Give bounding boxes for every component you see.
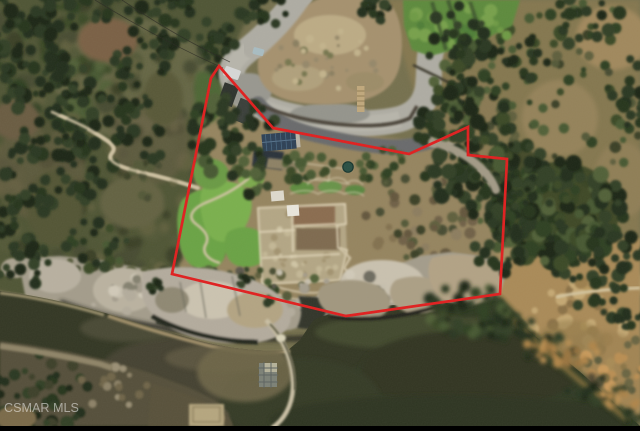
svg-text:CSMAR MLS: CSMAR MLS: [4, 401, 79, 415]
